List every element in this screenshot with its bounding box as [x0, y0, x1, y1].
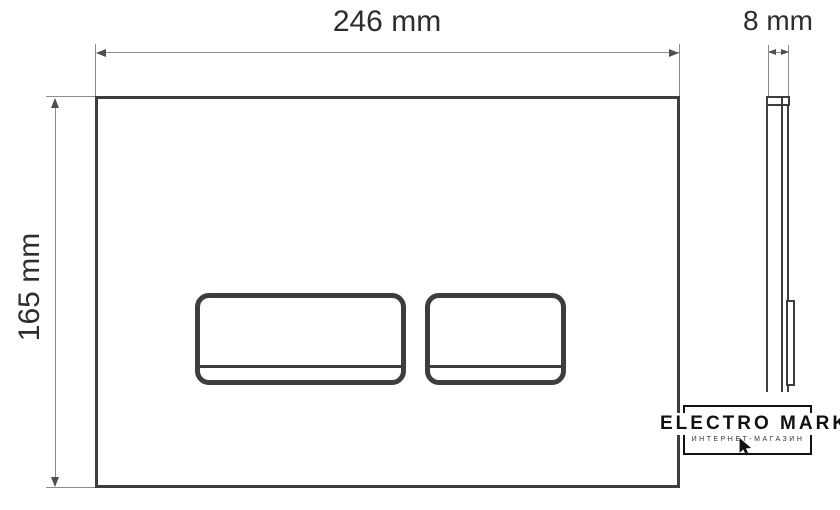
width-dimension-label: 246 mm	[287, 5, 487, 39]
depth-extension-line-left	[768, 45, 769, 96]
height-arrow-down-icon	[51, 477, 59, 487]
height-extension-line-bottom	[46, 487, 95, 488]
depth-extension-line-right	[788, 45, 789, 96]
side-view-button-profile	[786, 300, 795, 386]
width-arrow-right-icon	[669, 49, 679, 57]
width-extension-line-right	[679, 44, 680, 96]
width-dimension-line	[97, 52, 679, 53]
height-dimension-line	[55, 100, 56, 485]
width-extension-line-left	[95, 44, 96, 96]
depth-arrow-left-icon	[768, 49, 776, 55]
side-view-back-edge	[766, 106, 768, 392]
logo-title: ELECTRO MARKET	[660, 413, 836, 435]
side-view-cap-divider	[781, 96, 783, 106]
cursor-icon	[738, 438, 754, 456]
width-arrow-left-icon	[96, 49, 106, 57]
side-view-inner-edge	[781, 106, 783, 392]
depth-dimension-label: 8 mm	[728, 5, 828, 37]
technical-drawing-canvas: 246 mm 165 mm 8 mm ELECTRO MARKET ИНТЕРН…	[0, 0, 840, 510]
flush-button-large	[195, 293, 406, 385]
flush-plate-front-view	[95, 96, 680, 488]
flush-button-small-trim-line	[429, 365, 562, 368]
height-arrow-up-icon	[51, 98, 59, 108]
flush-button-small	[425, 293, 566, 385]
side-view-top-cap	[766, 96, 790, 106]
flush-button-large-trim-line	[199, 365, 402, 368]
height-dimension-label: 165 mm	[13, 187, 47, 387]
height-extension-line-top	[46, 96, 95, 97]
